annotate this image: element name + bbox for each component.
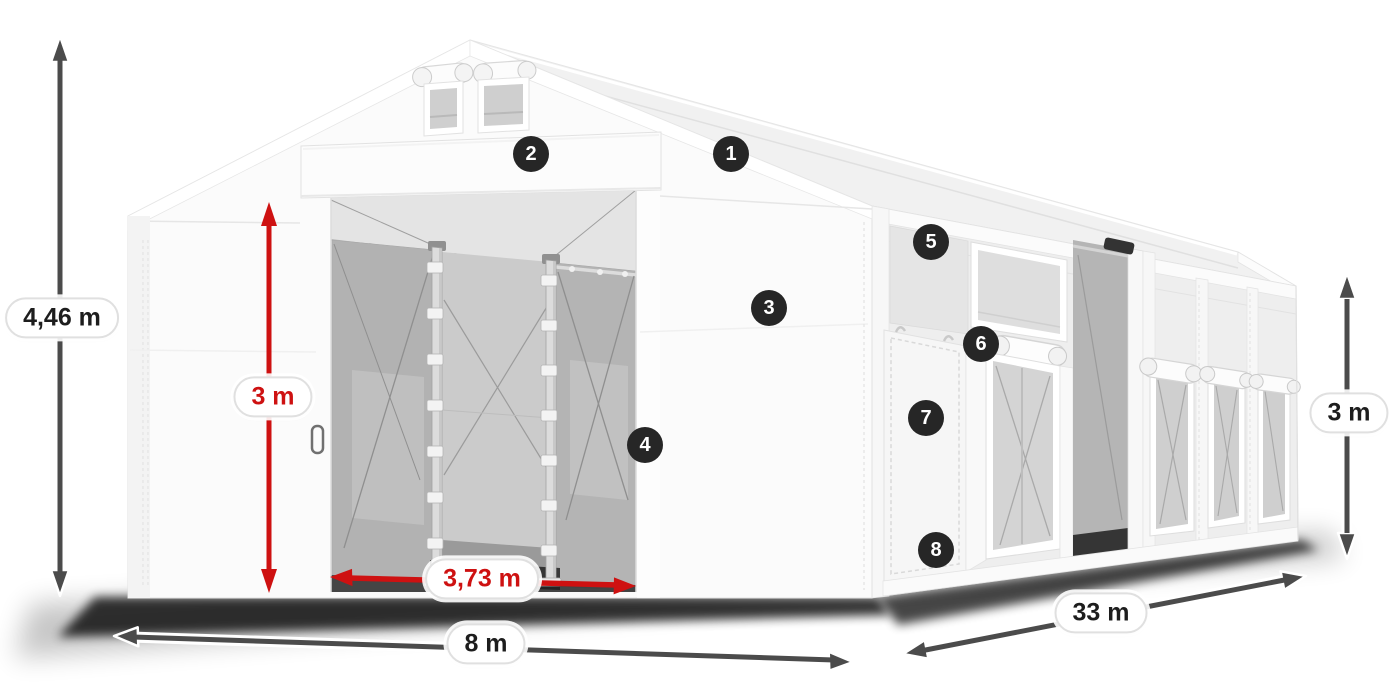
feature-marker-1[interactable]: 1	[713, 136, 749, 172]
dimension-label-door-height: 3 m	[233, 376, 312, 417]
tent-illustration	[0, 0, 1400, 700]
feature-marker-7[interactable]: 7	[908, 400, 944, 436]
product-dimension-diagram: 4,46 m 3 m 3,73 m 8 m 33 m 3 m 1 2 3 4 5…	[0, 0, 1400, 700]
dimension-label-side-height: 3 m	[1309, 392, 1388, 433]
open-side-section	[1073, 237, 1143, 561]
feature-marker-4[interactable]: 4	[627, 427, 663, 463]
mesh-gate-left	[332, 240, 436, 584]
feature-marker-5[interactable]: 5	[913, 224, 949, 260]
dimension-label-side-length: 33 m	[1055, 592, 1148, 633]
feature-marker-8[interactable]: 8	[918, 532, 954, 568]
mesh-gate-right	[556, 263, 636, 591]
feature-marker-2[interactable]: 2	[513, 136, 549, 172]
front-gate-opening	[331, 189, 636, 592]
interior-back-wall	[442, 252, 550, 584]
feature-marker-6[interactable]: 6	[963, 326, 999, 362]
dimension-label-door-width: 3,73 m	[425, 558, 539, 599]
dimension-label-front-width: 8 m	[446, 623, 525, 664]
feature-marker-3[interactable]: 3	[751, 290, 787, 326]
dimension-label-total-height: 4,46 m	[5, 297, 119, 338]
